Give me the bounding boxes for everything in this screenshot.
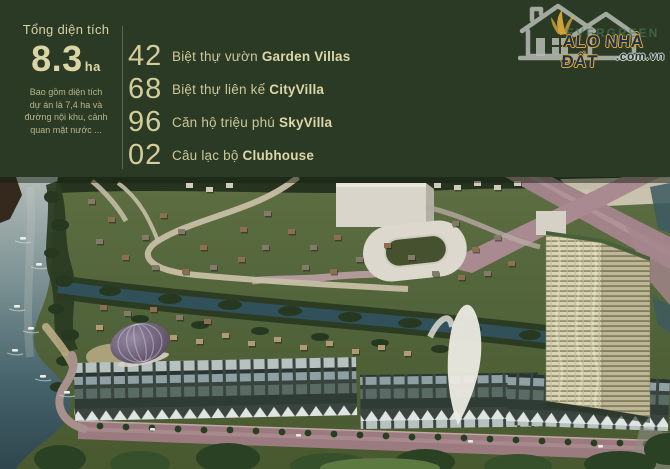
- total-area-label: Tổng diện tích: [14, 22, 118, 37]
- commercial-slab: [336, 183, 434, 229]
- total-area-block: Tổng diện tích 8.3ha Bao gồm diện tích d…: [14, 22, 118, 136]
- info-header: Tổng diện tích 8.3ha Bao gồm diện tích d…: [0, 0, 670, 177]
- vertical-divider: [122, 26, 123, 169]
- logo-domain: .com.vn: [616, 49, 666, 63]
- stat-clubhouse: 02 Câu lạc bộClubhouse: [128, 139, 350, 172]
- river-reflection: [28, 187, 31, 357]
- stat-number: 96: [128, 106, 166, 139]
- total-area-note: Bao gồm diện tích dự án là 7,4 ha và đườ…: [14, 86, 118, 136]
- skyvilla-tower: [546, 231, 650, 423]
- total-area-value: 8.3ha: [14, 41, 118, 77]
- aerial-render: [0, 177, 670, 469]
- stat-name: Clubhouse: [243, 148, 315, 163]
- header-shadow: [0, 177, 670, 183]
- stat-number: 42: [128, 40, 166, 73]
- real-estate-ad: Tổng diện tích 8.3ha Bao gồm diện tích d…: [0, 0, 670, 469]
- alonhadat-logo: EVERGREEN ALO NHÀ ĐẤT .com.vn: [518, 1, 668, 69]
- stat-number: 68: [128, 73, 166, 106]
- stat-label: Biệt thự liên kếCityVilla: [172, 82, 324, 97]
- stat-label: Biệt thự vườnGarden Villas: [172, 49, 350, 64]
- stat-name: Garden Villas: [262, 49, 351, 64]
- stat-name: SkyVilla: [279, 115, 332, 130]
- stat-name: CityVilla: [269, 82, 324, 97]
- stat-label: Câu lạc bộClubhouse: [172, 148, 314, 163]
- stat-skyvilla: 96 Căn hộ triệu phúSkyVilla: [128, 106, 350, 139]
- stat-label: Căn hộ triệu phúSkyVilla: [172, 115, 332, 130]
- midrise-slab: [536, 211, 566, 235]
- stat-garden-villas: 42 Biệt thự vườnGarden Villas: [128, 40, 350, 73]
- total-area-unit: ha: [85, 59, 101, 74]
- stat-number: 02: [128, 139, 166, 172]
- townhouse-row-1: [74, 357, 357, 421]
- stat-cityvilla: 68 Biệt thự liên kếCityVilla: [128, 73, 350, 106]
- aerial-render-photo: [0, 177, 670, 469]
- stats-list: 42 Biệt thự vườnGarden Villas 68 Biệt th…: [128, 40, 350, 172]
